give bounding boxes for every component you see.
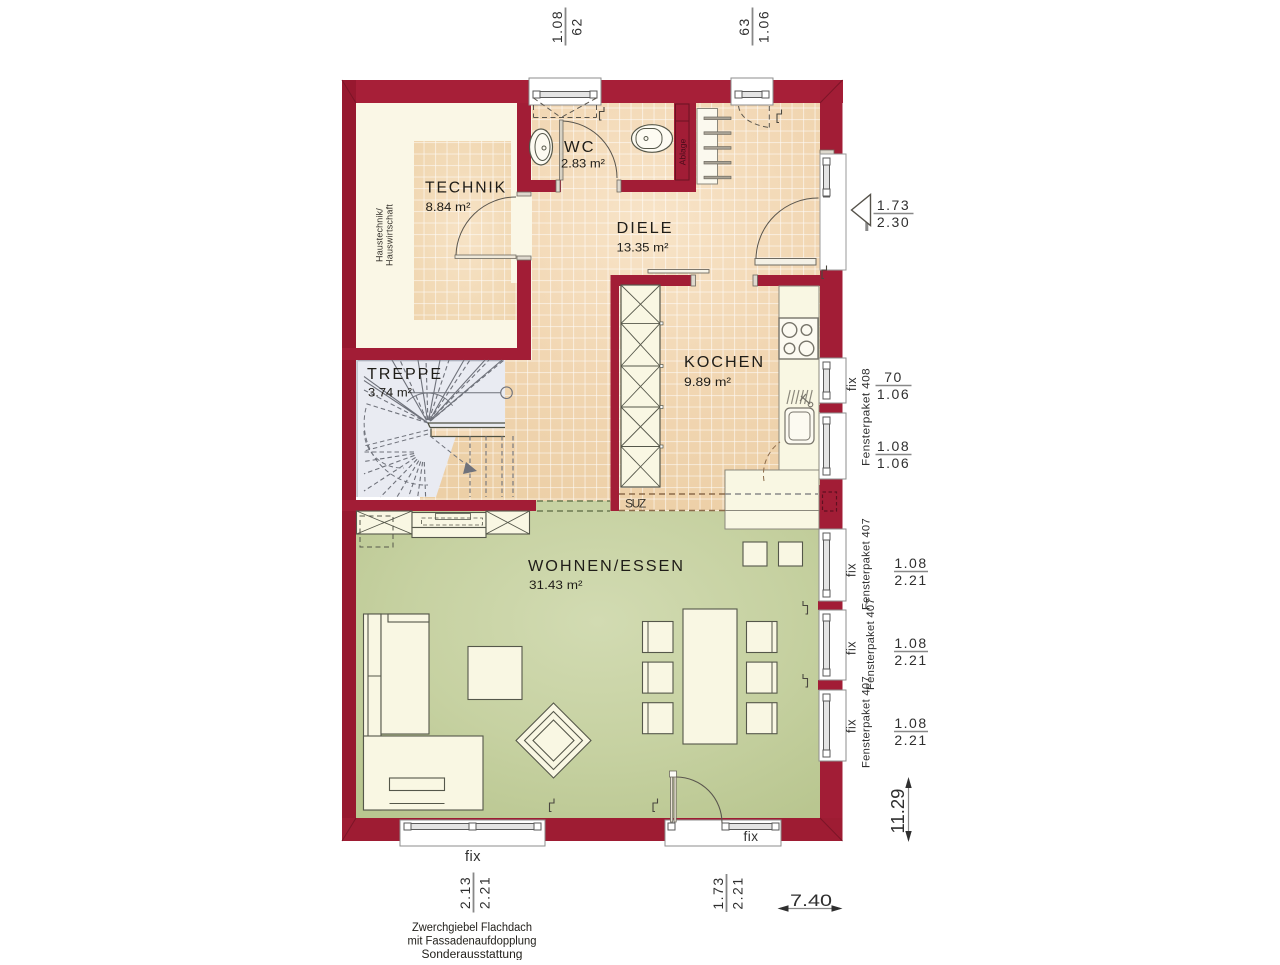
svg-text:1.06: 1.06 (877, 455, 910, 471)
svg-text:7.40: 7.40 (790, 891, 832, 910)
svg-text:63: 63 (736, 17, 752, 36)
svg-text:Hauswirtschaft: Hauswirtschaft (385, 204, 395, 266)
svg-text:62: 62 (569, 17, 585, 36)
svg-text:13.35 m²: 13.35 m² (617, 241, 669, 255)
svg-text:TREPPE: TREPPE (367, 366, 443, 383)
svg-text:WC: WC (564, 139, 596, 156)
svg-text:2.83 m²: 2.83 m² (561, 157, 605, 171)
svg-text:Ablage: Ablage (678, 138, 688, 165)
svg-text:1.08: 1.08 (877, 438, 910, 454)
svg-text:31.43 m²: 31.43 m² (529, 578, 583, 592)
svg-text:1.08: 1.08 (894, 715, 927, 731)
svg-text:SUZ: SUZ (625, 497, 648, 511)
svg-text:fix: fix (845, 719, 859, 733)
svg-text:1.73: 1.73 (710, 876, 726, 909)
svg-text:2.13: 2.13 (457, 876, 473, 909)
svg-text:WOHNEN/ESSEN: WOHNEN/ESSEN (528, 558, 685, 575)
svg-text:2.21: 2.21 (477, 876, 493, 909)
svg-text:2.21: 2.21 (894, 732, 927, 748)
svg-text:1.06: 1.06 (756, 10, 772, 43)
svg-text:DIELE: DIELE (617, 220, 674, 237)
svg-text:2.21: 2.21 (730, 876, 746, 909)
svg-text:2.21: 2.21 (894, 652, 927, 668)
svg-text:9.89 m²: 9.89 m² (684, 375, 731, 389)
svg-text:fix: fix (845, 563, 859, 577)
svg-text:1.06: 1.06 (877, 386, 910, 402)
svg-text:fix: fix (845, 641, 859, 655)
svg-text:Sonderausstattung: Sonderausstattung (422, 949, 523, 960)
svg-text:TECHNIK: TECHNIK (425, 180, 507, 197)
svg-text:1.08: 1.08 (894, 555, 927, 571)
svg-text:3.74 m²: 3.74 m² (368, 386, 412, 400)
svg-text:fix: fix (465, 849, 481, 865)
svg-text:Fensterpaket 407: Fensterpaket 407 (861, 518, 873, 610)
svg-text:2.21: 2.21 (894, 572, 927, 588)
svg-text:fix: fix (845, 377, 859, 391)
svg-text:1.08: 1.08 (549, 10, 565, 43)
svg-text:1.08: 1.08 (894, 635, 927, 651)
svg-text:mit Fassadenaufdopplung: mit Fassadenaufdopplung (408, 936, 537, 948)
svg-text:70: 70 (884, 369, 903, 385)
svg-text:Fensterpaket 408: Fensterpaket 408 (861, 368, 873, 466)
svg-text:Zwerchgiebel Flachdach: Zwerchgiebel Flachdach (412, 922, 532, 934)
svg-text:fix: fix (744, 829, 759, 844)
svg-text:Fensterpaket 407: Fensterpaket 407 (861, 676, 873, 768)
svg-text:8.84 m²: 8.84 m² (426, 200, 471, 214)
svg-text:11.29: 11.29 (887, 789, 908, 834)
svg-text:Haustechnik/: Haustechnik/ (375, 208, 385, 262)
svg-text:1.73: 1.73 (877, 197, 910, 213)
svg-text:KOCHEN: KOCHEN (684, 354, 765, 371)
svg-text:2.30: 2.30 (877, 214, 910, 230)
